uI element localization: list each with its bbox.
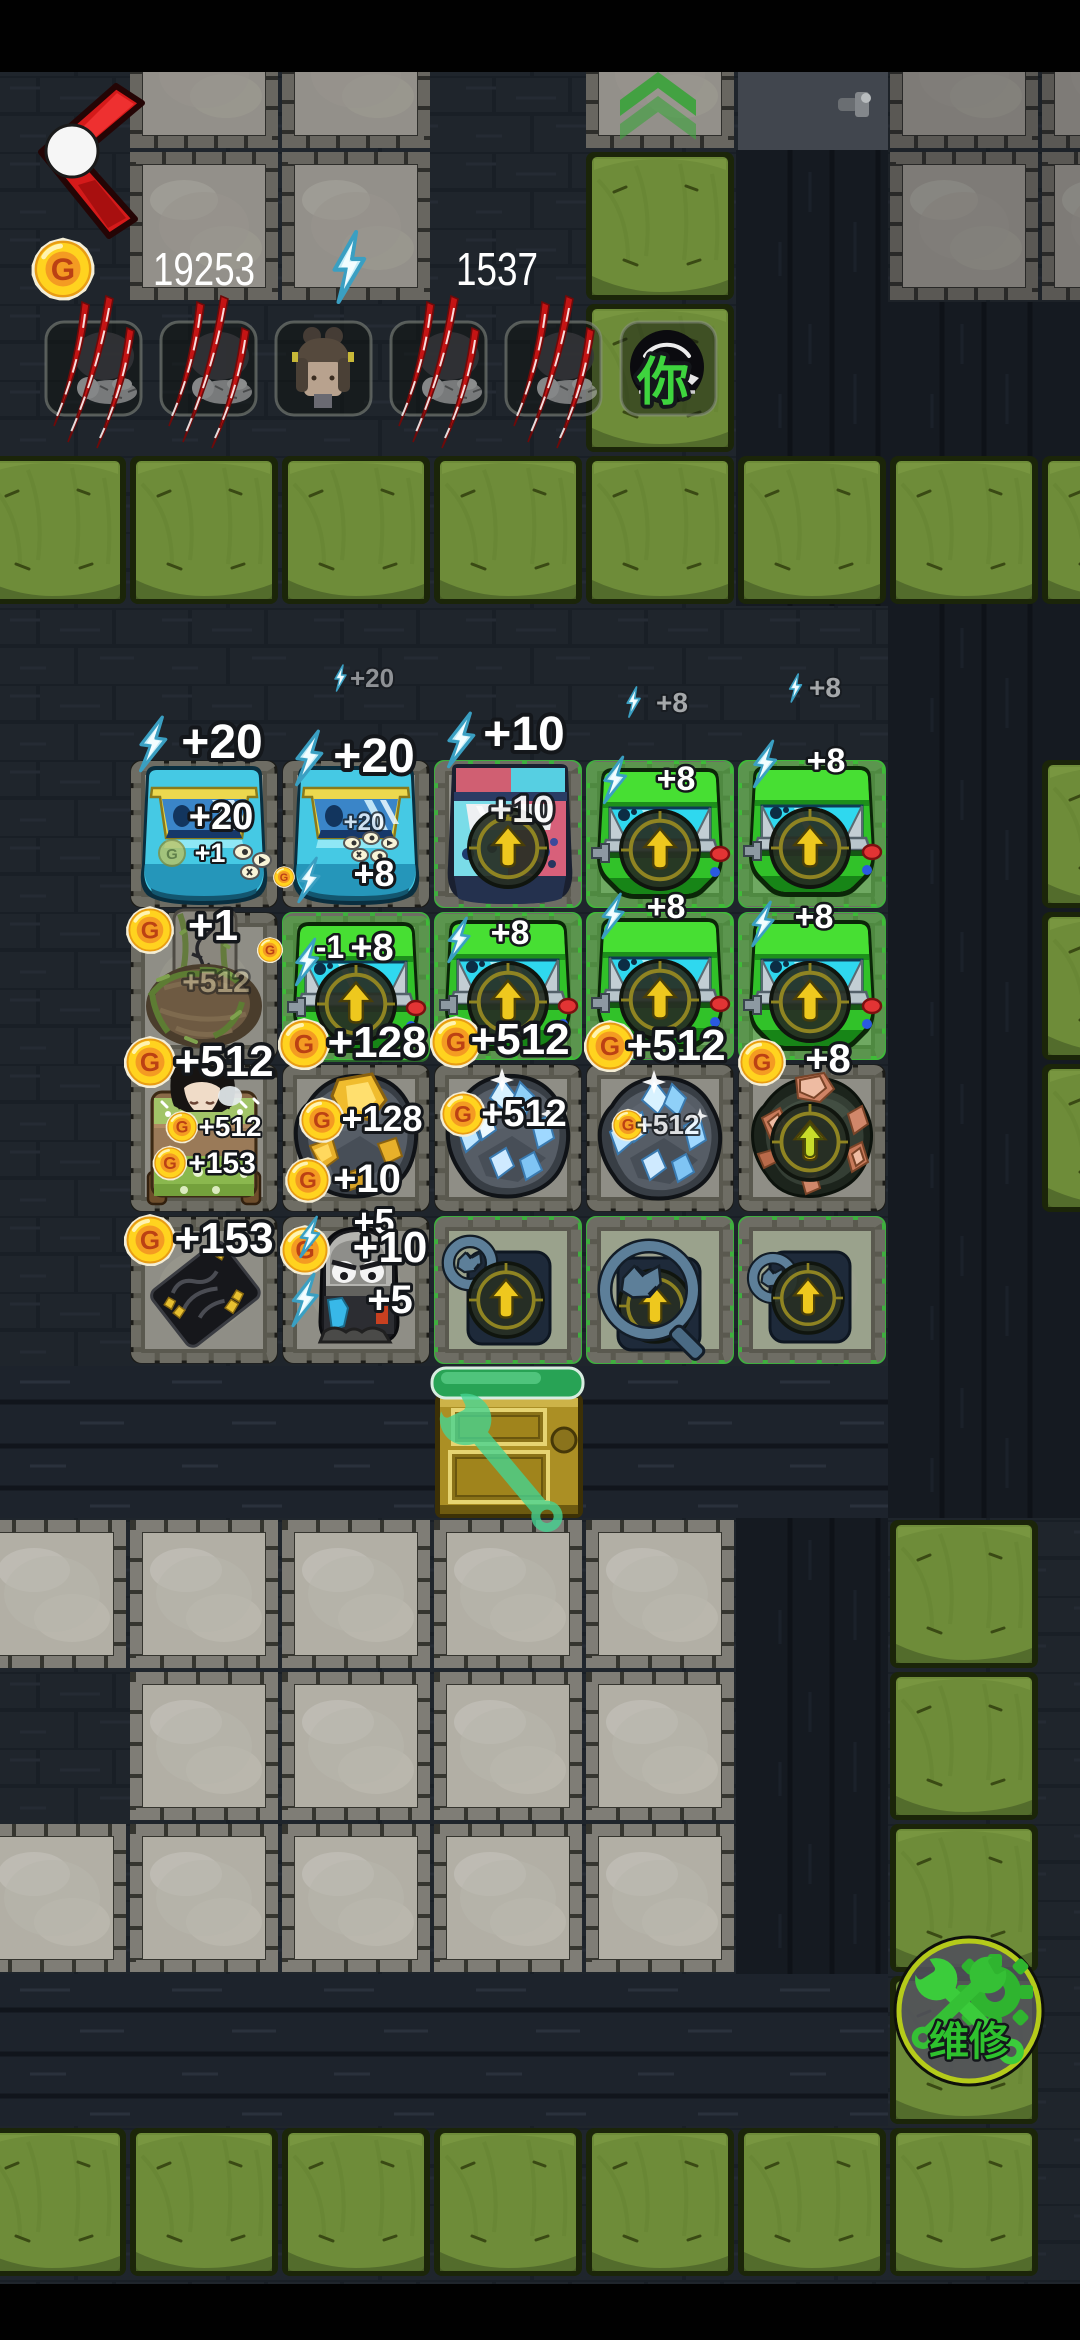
svg-text:+10: +10	[333, 1157, 401, 1201]
svg-text:+512: +512	[626, 1021, 725, 1070]
svg-text:+153: +153	[188, 1147, 256, 1180]
svg-text:+8: +8	[795, 898, 834, 936]
svg-text:G: G	[313, 1107, 331, 1133]
svg-text:+128: +128	[341, 1098, 422, 1139]
svg-text:+8: +8	[647, 888, 686, 926]
svg-text:G: G	[294, 1029, 314, 1059]
svg-text:+8: +8	[656, 687, 688, 718]
svg-text:+153: +153	[174, 1214, 273, 1263]
svg-text:G: G	[753, 1049, 772, 1076]
svg-text:G: G	[622, 1117, 635, 1135]
svg-text:G: G	[166, 846, 178, 863]
svg-text:维修: 维修	[929, 2020, 1010, 2064]
svg-text:19253: 19253	[153, 243, 255, 295]
svg-text:你: 你	[636, 354, 689, 412]
svg-text:G: G	[600, 1031, 620, 1061]
svg-text:+1: +1	[195, 838, 226, 868]
svg-text:G: G	[140, 1225, 160, 1255]
svg-text:+512: +512	[636, 1109, 699, 1140]
svg-text:G: G	[176, 1119, 189, 1137]
svg-text:+1: +1	[188, 901, 238, 950]
svg-text:+8: +8	[657, 760, 696, 798]
svg-text:+10: +10	[483, 708, 564, 761]
svg-text:G: G	[163, 1153, 176, 1173]
svg-text:+8: +8	[491, 914, 530, 952]
svg-text:+512: +512	[470, 1015, 569, 1064]
svg-text:+10: +10	[353, 1223, 428, 1272]
svg-text:G: G	[446, 1027, 466, 1057]
svg-text:+20: +20	[181, 716, 262, 769]
svg-text:G: G	[141, 917, 160, 944]
svg-text:G: G	[280, 872, 288, 884]
svg-text:+20: +20	[350, 663, 394, 693]
svg-text:+8: +8	[805, 1037, 851, 1081]
svg-text:G: G	[265, 943, 275, 958]
svg-text:G: G	[299, 1167, 317, 1193]
svg-text:+10: +10	[490, 789, 554, 831]
svg-text:+8: +8	[350, 927, 393, 969]
svg-text:+128: +128	[327, 1018, 426, 1067]
svg-text:G: G	[51, 252, 75, 287]
svg-text:+5: +5	[367, 1278, 413, 1322]
svg-text:+512: +512	[174, 1037, 273, 1086]
svg-text:+20: +20	[344, 809, 385, 836]
svg-text:+20: +20	[189, 796, 253, 838]
svg-text:G: G	[140, 1047, 160, 1077]
svg-text:+8: +8	[353, 853, 394, 894]
svg-text:G: G	[454, 1101, 472, 1127]
svg-text:+512: +512	[182, 966, 250, 999]
svg-text:+20: +20	[333, 730, 414, 783]
svg-text:+8: +8	[809, 672, 841, 703]
svg-text:+512: +512	[481, 1093, 567, 1135]
svg-text:1537: 1537	[456, 243, 538, 295]
svg-text:-1: -1	[316, 929, 344, 965]
svg-text:+512: +512	[198, 1111, 261, 1142]
svg-text:+8: +8	[807, 742, 846, 780]
